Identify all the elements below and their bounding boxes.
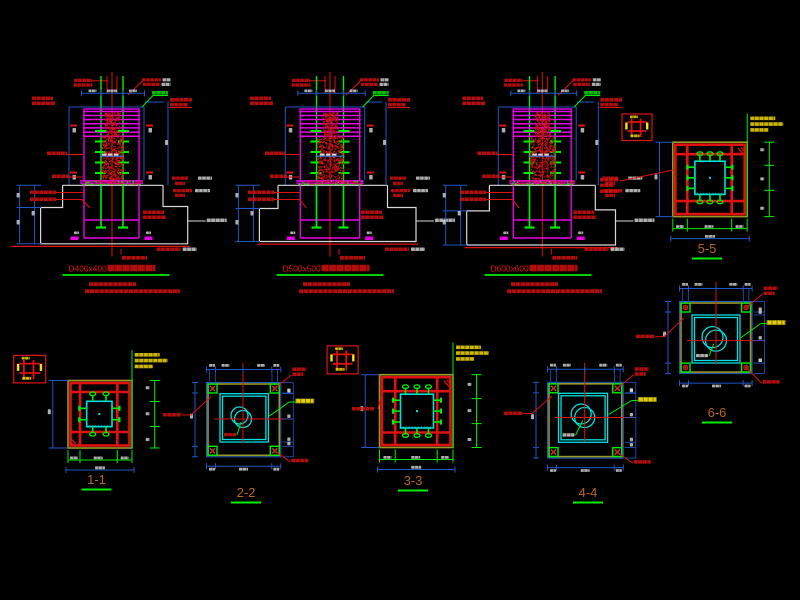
svg-text:D500x500: D500x500	[283, 263, 322, 273]
svg-text:2-2: 2-2	[237, 485, 256, 500]
svg-text:D400x400: D400x400	[69, 263, 108, 273]
svg-text:3-3: 3-3	[404, 473, 423, 488]
svg-text:1-1: 1-1	[87, 472, 106, 487]
svg-text:5-5: 5-5	[698, 241, 717, 256]
svg-text:D600x600: D600x600	[491, 263, 530, 273]
svg-text:6-6: 6-6	[708, 405, 727, 420]
svg-text:4-4: 4-4	[579, 485, 598, 500]
